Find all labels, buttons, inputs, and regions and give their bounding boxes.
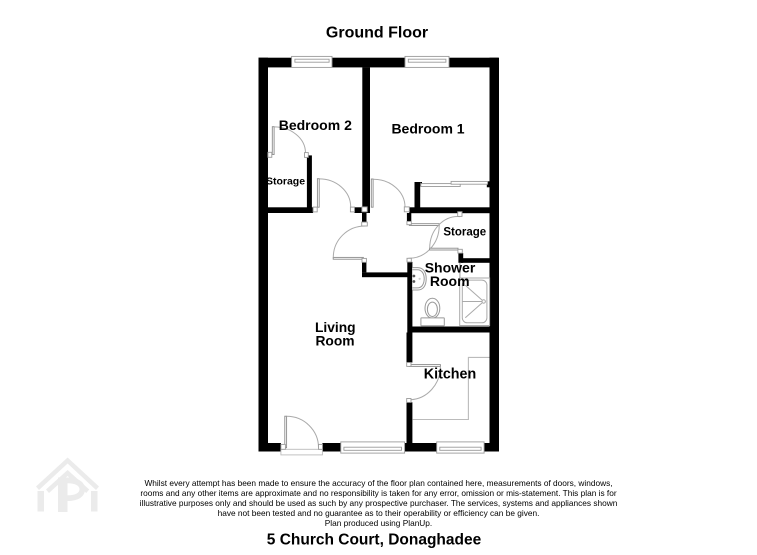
svg-text:Bedroom 1: Bedroom 1: [391, 121, 464, 137]
svg-text:Room: Room: [315, 333, 354, 348]
svg-text:rooms and any other items are: rooms and any other items are approximat…: [140, 488, 616, 498]
svg-text:Storage: Storage: [443, 227, 486, 239]
svg-text:Storage: Storage: [266, 175, 305, 187]
svg-text:Room: Room: [430, 273, 470, 289]
svg-text:Plan produced using PlanUp.: Plan produced using PlanUp.: [325, 518, 432, 528]
svg-text:Whilst every attempt has been: Whilst every attempt has been made to en…: [144, 478, 612, 488]
svg-text:5 Church Court, Donaghadee: 5 Church Court, Donaghadee: [267, 532, 482, 549]
svg-text:Bedroom 2: Bedroom 2: [279, 117, 352, 133]
svg-text:have not been tested and no gu: have not been tested and no guarantee as…: [218, 508, 540, 518]
svg-text:Kitchen: Kitchen: [424, 366, 476, 382]
svg-text:Ground Floor: Ground Floor: [326, 25, 428, 42]
svg-text:illustrative purposes only and: illustrative purposes only and should be…: [140, 498, 618, 508]
